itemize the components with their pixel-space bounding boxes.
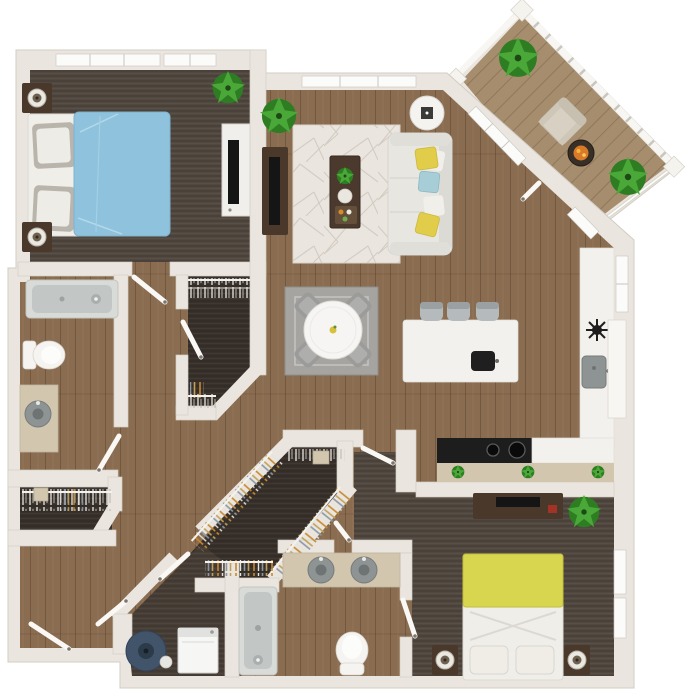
nightstand-2b bbox=[564, 645, 590, 675]
wall-bathroom2-right-upper bbox=[400, 553, 412, 600]
decor-starburst bbox=[586, 319, 608, 341]
wall-bathroom2-top-right bbox=[352, 540, 412, 553]
kitchen-island bbox=[403, 320, 518, 382]
table-lamp-1b bbox=[28, 228, 46, 246]
sofa-arm-bottom bbox=[390, 242, 450, 255]
toilet2-tank bbox=[340, 663, 364, 675]
sofa bbox=[388, 133, 452, 255]
media-console-2 bbox=[473, 493, 563, 519]
pillow-blue bbox=[418, 171, 440, 193]
table-lamp-2b bbox=[568, 651, 586, 669]
duvet-blue bbox=[74, 112, 170, 236]
counter-herb-ledge bbox=[437, 463, 614, 482]
floor-plan-canvas bbox=[0, 0, 700, 700]
coffee-table bbox=[330, 156, 360, 228]
wall-bedroom1-bottom-left bbox=[18, 262, 132, 276]
round-dining-table bbox=[304, 301, 362, 359]
window-bedroom2-a bbox=[614, 550, 626, 594]
wall-closet1-left-lower bbox=[176, 355, 188, 415]
coffee-table-tray bbox=[335, 206, 357, 224]
vanity-1 bbox=[20, 385, 58, 452]
pillow-yellow-2 bbox=[415, 212, 440, 237]
bathtub-1 bbox=[26, 280, 118, 318]
washer bbox=[178, 628, 218, 673]
pillow-yellow-1 bbox=[415, 147, 439, 171]
tv-bedroom2 bbox=[496, 497, 540, 507]
toilet-1 bbox=[23, 341, 65, 369]
pillow-2b bbox=[516, 646, 554, 674]
dresser-1 bbox=[222, 124, 250, 216]
counter-corner-marble bbox=[532, 438, 614, 463]
wall-closet1-left-upper bbox=[176, 275, 188, 309]
tv-living bbox=[269, 157, 280, 225]
wall-laundry-right bbox=[225, 563, 239, 677]
bed-2 bbox=[463, 554, 563, 680]
island-sink bbox=[471, 351, 495, 371]
bathtub-2 bbox=[239, 587, 277, 675]
double-vanity bbox=[283, 553, 400, 587]
console-decor bbox=[548, 505, 557, 513]
table-lamp-2a bbox=[436, 651, 454, 669]
tv-console-living bbox=[262, 147, 288, 235]
table-lamp-1a bbox=[28, 89, 46, 107]
wall-nook-pillar bbox=[396, 430, 416, 492]
window-kitchen-right bbox=[616, 256, 628, 312]
pillow-2a bbox=[470, 646, 508, 674]
round-side-table bbox=[410, 96, 444, 130]
wall-bathroom2-right-lower bbox=[400, 637, 412, 677]
duvet-yellow bbox=[463, 554, 563, 607]
wall-hallcloset-top bbox=[8, 470, 118, 487]
nightstand-1a bbox=[22, 83, 52, 113]
tub1-drain bbox=[60, 297, 65, 302]
bed-1 bbox=[28, 112, 170, 236]
burner-1 bbox=[487, 444, 499, 456]
window-bedroom1-a bbox=[56, 54, 160, 66]
toilet-2 bbox=[336, 632, 368, 675]
window-bedroom2-b bbox=[614, 598, 626, 638]
coffee-table-dish bbox=[338, 189, 352, 203]
vanity1-faucet bbox=[36, 401, 40, 405]
nightstand-2a bbox=[432, 645, 458, 675]
window-bedroom1-b bbox=[164, 54, 216, 66]
tv-bedroom1 bbox=[228, 140, 239, 204]
sofa-arm-top bbox=[390, 133, 450, 146]
closet2-storage-box bbox=[313, 451, 329, 464]
hall-closet bbox=[22, 488, 112, 511]
tub2-drain bbox=[255, 625, 261, 631]
hallcloset-box bbox=[34, 488, 48, 501]
burner-2 bbox=[509, 442, 525, 458]
refrigerator bbox=[608, 320, 626, 418]
detergent bbox=[160, 656, 172, 668]
dining-area bbox=[285, 287, 378, 375]
fire-table bbox=[568, 140, 594, 166]
nightstand-1b bbox=[22, 222, 52, 252]
floor-plan-svg bbox=[0, 0, 700, 700]
window-living bbox=[302, 76, 416, 87]
cooktop-counter bbox=[437, 438, 532, 463]
wall-hallcloset-bottom bbox=[8, 530, 116, 546]
